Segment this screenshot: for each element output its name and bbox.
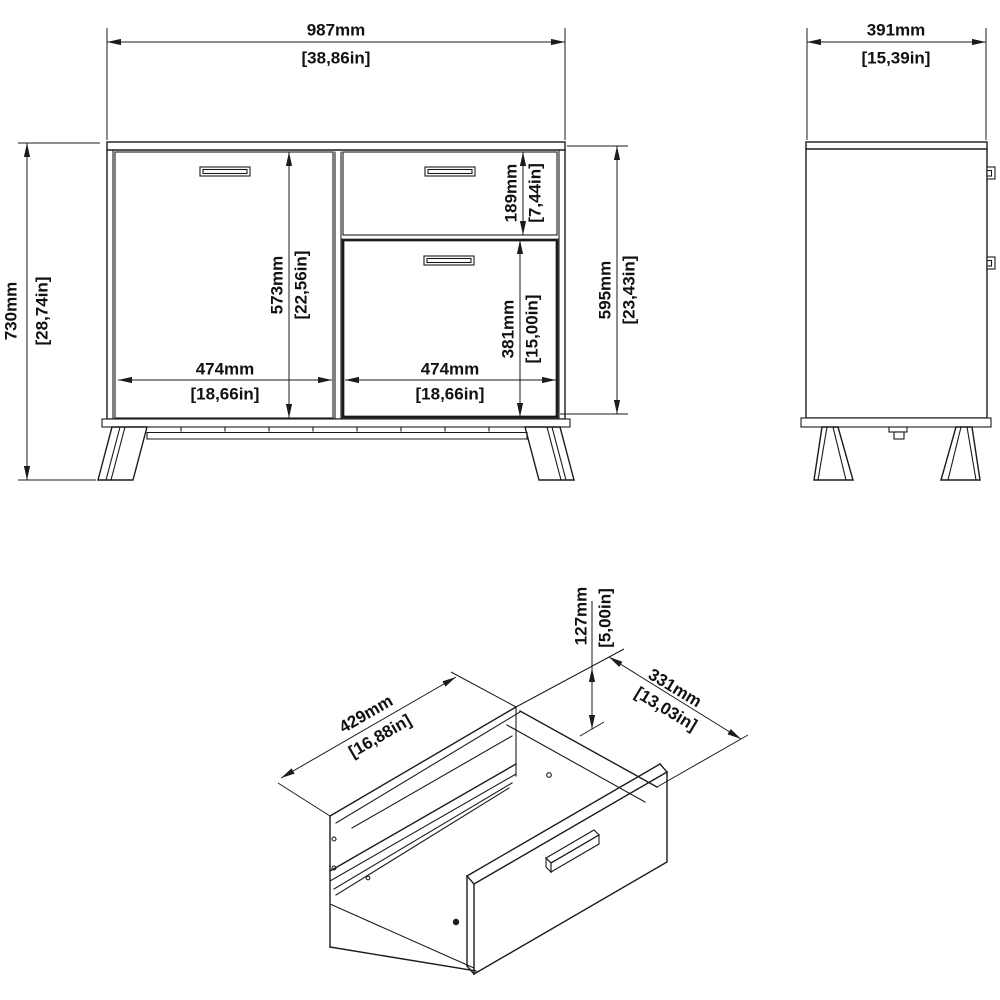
side-view: 391mm [15,39in] [801,21,995,481]
dim-drawer-height-mm: 127mm [572,587,591,646]
dim-drawer-front-height-mm: 189mm [502,164,521,223]
rail-joint-marks [181,427,489,431]
dim-bottom-door-height-mm: 381mm [499,300,518,359]
side-handle-profiles [987,167,995,269]
dim-front-height-mm: 730mm [2,282,21,341]
drawer-interior [507,711,657,802]
side-body [806,142,987,418]
dim-drawer-front-height-in: [7,44in] [526,163,545,223]
rail-screw [453,919,459,925]
dim-front-width-in: [38,86in] [302,49,371,68]
dim-side-depth-in: [15,39in] [862,49,931,68]
dim-front-total-height-mm: 595mm [596,261,615,320]
dim-side-depth-mm: 391mm [867,21,926,40]
bottom-door-handle [424,256,474,265]
drawer-handle [425,167,475,176]
dim-front-height: 730mm [28,74in] [2,143,101,480]
dim-front-width-mm: 987mm [307,21,366,40]
dim-drawer-front-height: 189mm [7,44in] [502,152,545,235]
dim-drawer-height-in: [5,00in] [596,588,615,648]
side-center-bracket [889,427,907,439]
drawer-handle-3d [546,830,599,872]
dim-left-door-width-mm: 474mm [196,360,255,379]
dim-side-depth: 391mm [15,39in] [807,21,986,141]
dim-bottom-door-height-in: [15,00in] [523,295,542,364]
dim-left-door-width-in: [18,66in] [191,385,260,404]
dim-right-section-width-mm: 474mm [421,360,480,379]
dim-door-height-in: [22,56in] [292,251,311,320]
dimension-drawing: 987mm [38,86in] 730mm [28,74in] 573mm [2… [0,0,1000,1000]
dim-front-total-height: 595mm [23,43in] [560,146,639,414]
drawer-isometric-view: 127mm [5,00in] 331mm [13,03in] 429mm [16… [278,587,748,974]
dim-drawer-width: 429mm [16,88in] [281,677,456,778]
dim-front-width: 987mm [38,86in] [107,21,565,141]
dim-right-section-width-in: [18,66in] [416,385,485,404]
dim-drawer-depth: 331mm [13,03in] [609,657,741,739]
dim-front-height-in: [28,74in] [33,277,52,346]
left-door-handle [200,167,250,176]
side-plinth [801,418,991,427]
dim-door-height-mm: 573mm [268,256,287,315]
front-plinth [102,419,570,427]
dim-front-total-height-in: [23,43in] [620,256,639,325]
front-view: 987mm [38,86in] 730mm [28,74in] 573mm [2… [2,21,639,481]
